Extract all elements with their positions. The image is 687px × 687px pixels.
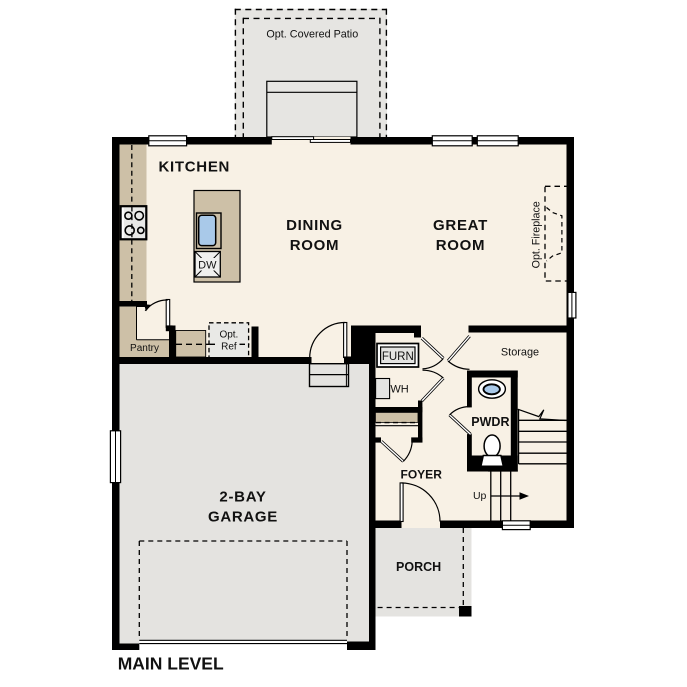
svg-text:ROOM: ROOM bbox=[290, 237, 339, 254]
svg-text:PORCH: PORCH bbox=[396, 560, 441, 574]
svg-text:Pantry: Pantry bbox=[130, 343, 159, 354]
svg-text:WH: WH bbox=[390, 383, 408, 395]
svg-text:Ref: Ref bbox=[221, 342, 237, 353]
svg-text:DW: DW bbox=[198, 259, 217, 271]
svg-text:GARAGE: GARAGE bbox=[208, 509, 278, 526]
svg-text:FURN: FURN bbox=[382, 351, 414, 363]
svg-text:ROOM: ROOM bbox=[436, 237, 485, 254]
svg-text:GREAT: GREAT bbox=[433, 217, 488, 234]
svg-text:Up: Up bbox=[473, 490, 487, 502]
svg-text:Opt.: Opt. bbox=[219, 330, 238, 341]
svg-text:FOYER: FOYER bbox=[401, 467, 443, 481]
svg-text:Opt. Fireplace: Opt. Fireplace bbox=[531, 201, 543, 268]
svg-text:MAIN LEVEL: MAIN LEVEL bbox=[118, 653, 224, 673]
svg-text:2-BAY: 2-BAY bbox=[219, 489, 266, 506]
svg-text:PWDR: PWDR bbox=[471, 415, 509, 429]
svg-text:Storage: Storage bbox=[501, 346, 539, 358]
svg-text:DINING: DINING bbox=[286, 217, 343, 234]
svg-text:Opt. Covered Patio: Opt. Covered Patio bbox=[266, 28, 358, 40]
svg-text:KITCHEN: KITCHEN bbox=[159, 159, 231, 176]
